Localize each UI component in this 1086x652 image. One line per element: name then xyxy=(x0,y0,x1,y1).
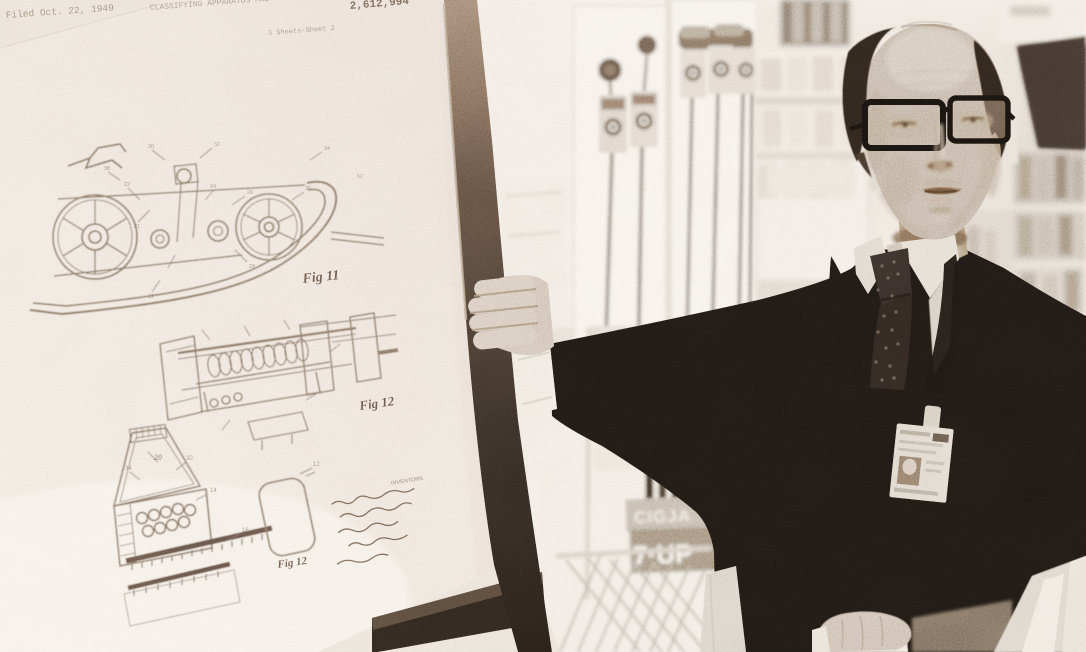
svg-text:16: 16 xyxy=(242,528,249,534)
svg-text:36: 36 xyxy=(305,186,311,192)
svg-text:32: 32 xyxy=(214,142,220,148)
svg-text:CIGJA: CIGJA xyxy=(634,506,692,527)
svg-text:28: 28 xyxy=(249,264,255,270)
svg-text:12: 12 xyxy=(148,294,154,300)
svg-text:20: 20 xyxy=(153,453,162,462)
svg-text:24: 24 xyxy=(210,184,216,190)
svg-text:38: 38 xyxy=(104,166,110,172)
svg-text:7·UP: 7·UP xyxy=(633,538,693,570)
svg-text:14: 14 xyxy=(210,488,217,494)
svg-text:22: 22 xyxy=(124,182,130,188)
svg-text:12: 12 xyxy=(313,462,320,468)
svg-text:21: 21 xyxy=(134,224,140,230)
svg-text:62: 62 xyxy=(357,174,363,180)
svg-text:30: 30 xyxy=(186,456,193,462)
svg-text:30: 30 xyxy=(148,144,154,150)
svg-text:26: 26 xyxy=(247,190,253,196)
svg-text:34: 34 xyxy=(324,146,330,152)
svg-text:34: 34 xyxy=(125,466,132,472)
